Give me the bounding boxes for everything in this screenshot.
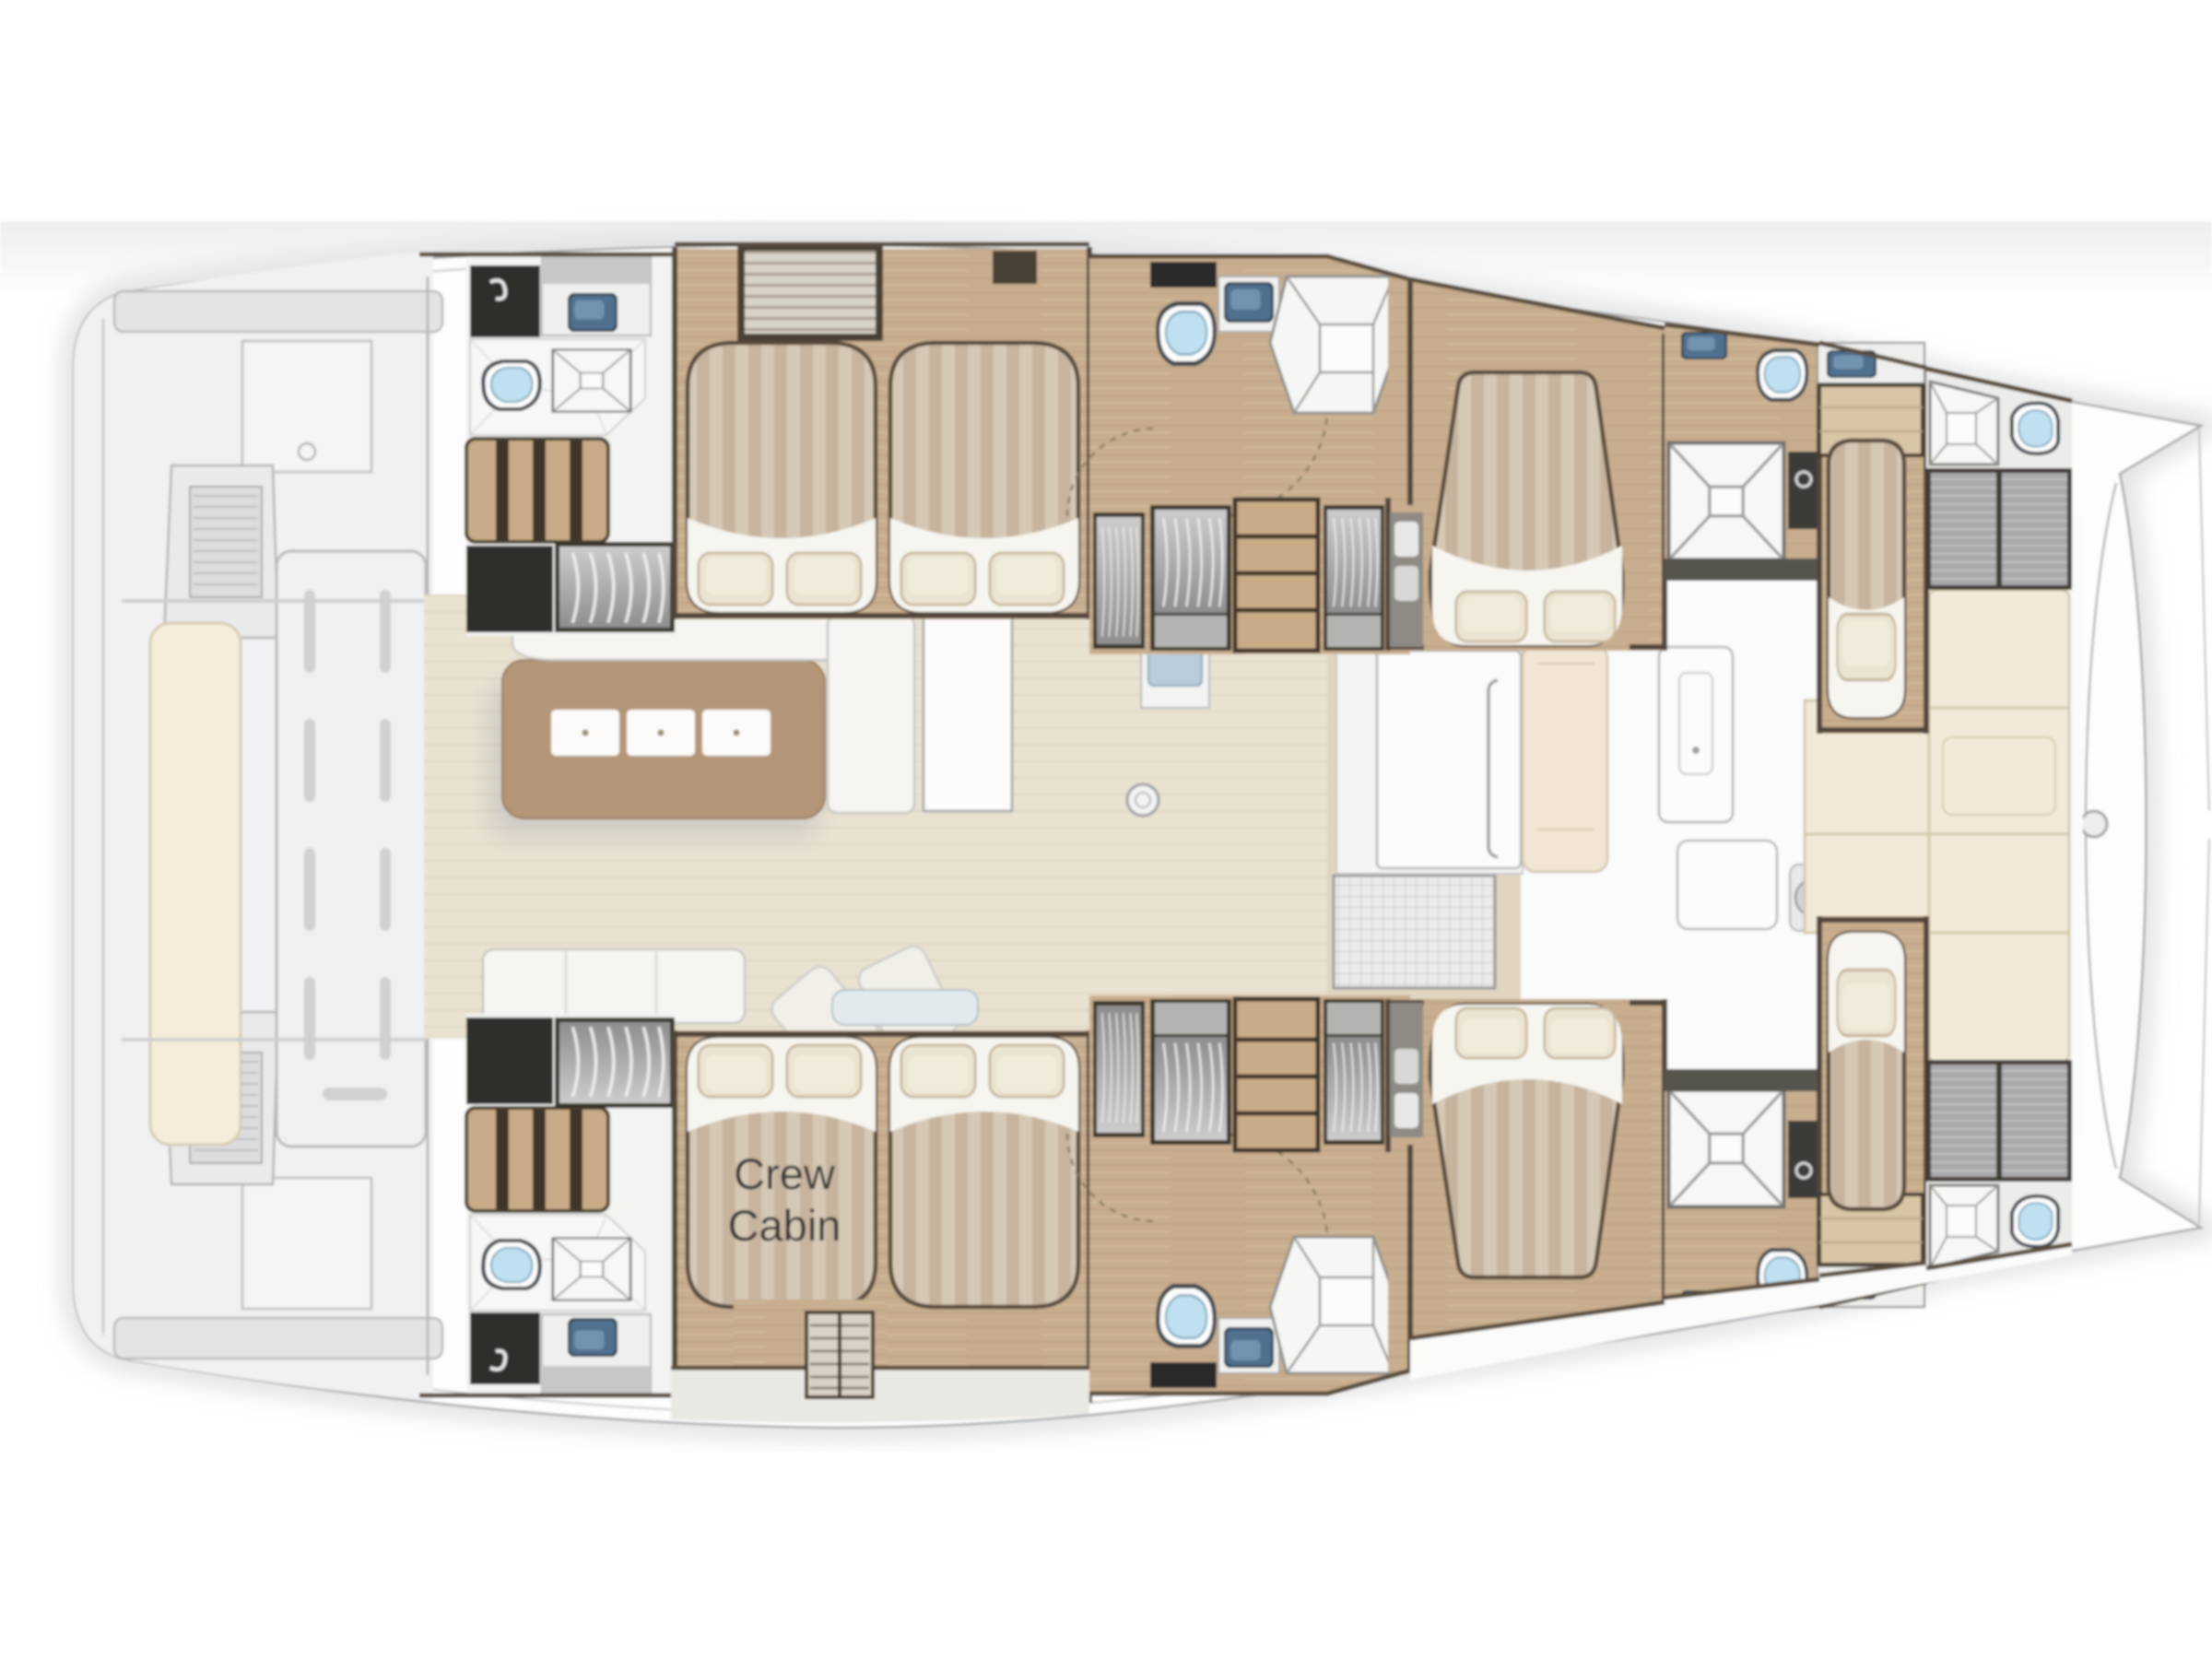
svg-text:Crew: Crew xyxy=(734,1149,836,1198)
svg-text:Cabin: Cabin xyxy=(728,1201,841,1250)
